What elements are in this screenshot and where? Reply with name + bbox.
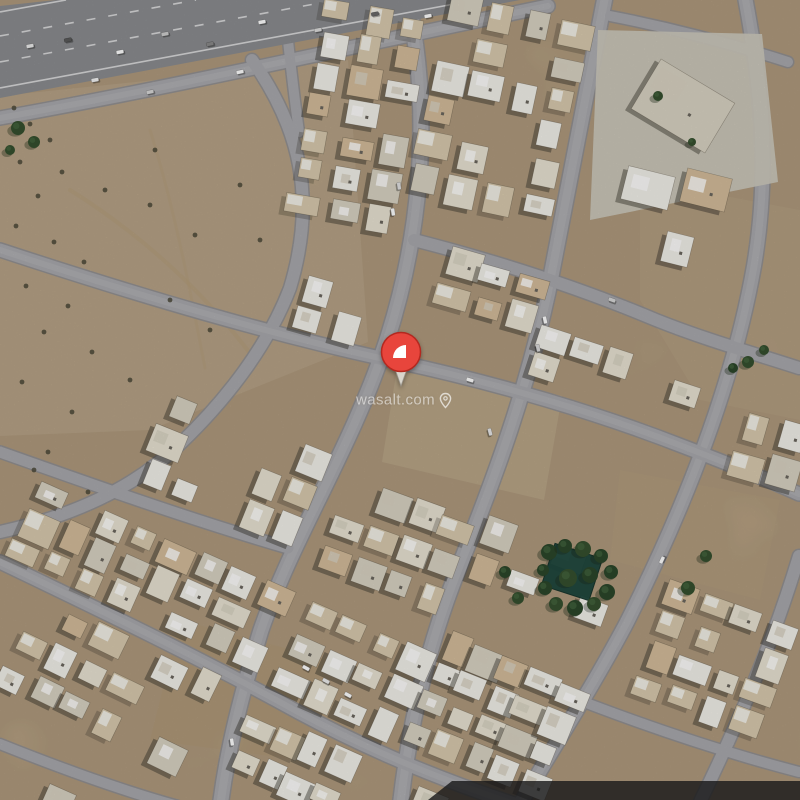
map-pin-marker[interactable] [378,330,424,388]
satellite-imagery-canvas [0,0,800,800]
noise-light [0,0,800,800]
satellite-map[interactable]: wasalt.com [0,0,800,800]
bottom-overlay-band [428,781,800,800]
